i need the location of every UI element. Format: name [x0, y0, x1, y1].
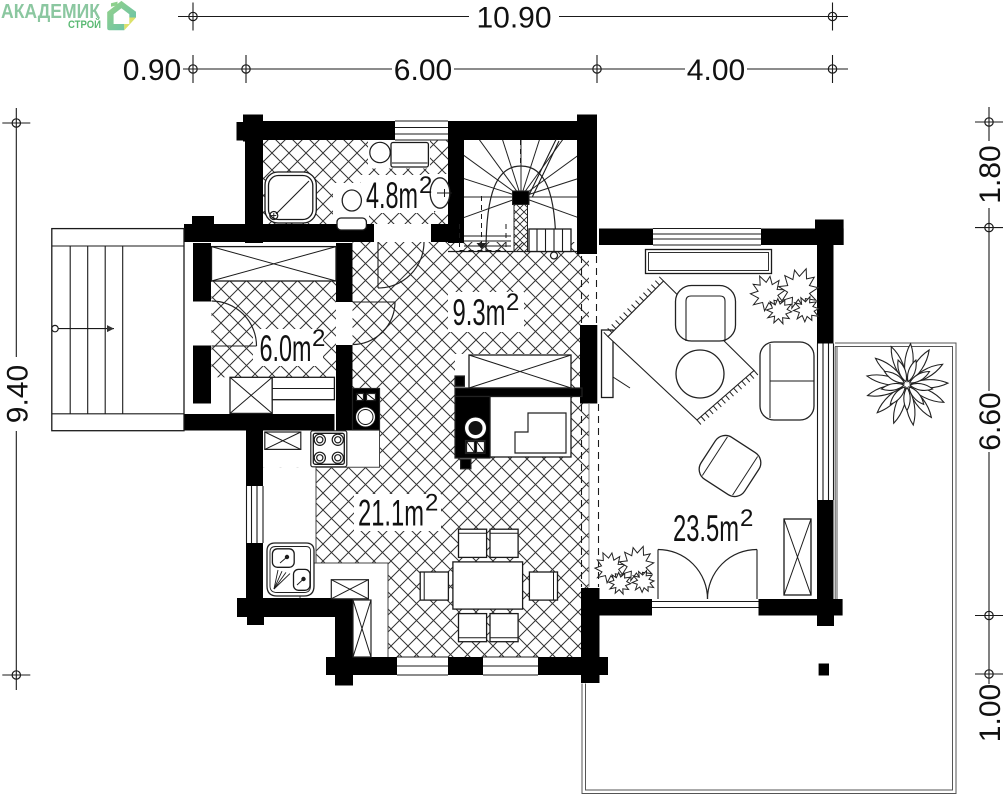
svg-text:6.0m: 6.0m [260, 328, 312, 369]
svg-text:2: 2 [425, 490, 438, 517]
svg-text:2: 2 [419, 172, 432, 199]
svg-text:2: 2 [740, 505, 753, 532]
svg-text:6.00: 6.00 [394, 54, 452, 87]
svg-text:9.3m: 9.3m [453, 292, 506, 333]
svg-text:2: 2 [312, 325, 325, 352]
svg-text:9.40: 9.40 [2, 365, 35, 423]
svg-text:10.90: 10.90 [476, 2, 551, 35]
svg-text:4.8m: 4.8m [366, 175, 418, 216]
svg-text:СТРОЙ: СТРОЙ [68, 18, 101, 31]
svg-text:23.5m: 23.5m [673, 508, 739, 549]
svg-text:2: 2 [506, 289, 519, 316]
svg-text:4.00: 4.00 [687, 54, 745, 87]
svg-text:21.1m: 21.1m [358, 493, 424, 534]
svg-text:1.80: 1.80 [974, 145, 1006, 203]
svg-text:1.00: 1.00 [974, 684, 1006, 742]
svg-text:6.60: 6.60 [974, 392, 1006, 450]
svg-text:0.90: 0.90 [123, 54, 181, 87]
